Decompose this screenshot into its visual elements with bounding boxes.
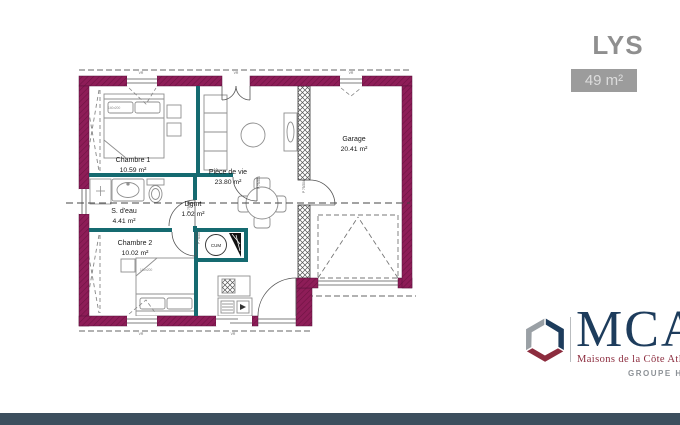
vanity-sink [112, 179, 144, 201]
room-label-chambre2: Chambre 2 10.02 m² [118, 240, 153, 257]
room-label-degagement: Dgmt 1.02 m² [181, 201, 205, 218]
sofa [204, 95, 227, 170]
window-code-5: VR [231, 332, 236, 336]
window-chambre2 [127, 316, 157, 326]
shower [90, 179, 111, 204]
mca-cube-icon [520, 314, 570, 366]
garage-name: Garage [342, 136, 365, 143]
sdeau-name: S. d'eau [111, 208, 137, 215]
entrance-door [258, 278, 296, 316]
logo-group-text: GROUPE HEXA [628, 369, 680, 378]
door-chambre2 [172, 232, 196, 256]
room-label-piece-de-vie: Pièce de vie 23.80 m² [209, 169, 247, 186]
door-code-4: P 75/204 [302, 180, 306, 193]
bay-window [216, 316, 252, 326]
garage-sectional-door [318, 215, 398, 278]
window-sdeau [79, 189, 89, 214]
entrance-threshold [258, 319, 296, 323]
logo-divider [570, 317, 571, 362]
bed-chambre2 [121, 258, 196, 316]
chambre1-area: 10.59 m² [120, 167, 148, 174]
window-garage [340, 76, 362, 86]
room-label-garage: Garage 20.41 m² [341, 136, 369, 153]
piece-de-vie-area: 23.80 m² [215, 179, 243, 186]
degagement-area: 1.02 m² [181, 211, 205, 218]
chambre2-area: 10.02 m² [122, 250, 150, 257]
window-code-4: VR [139, 332, 144, 336]
piece-de-vie-name: Pièce de vie [209, 169, 247, 176]
room-label-chambre1: Chambre 1 10.59 m² [116, 157, 151, 174]
tv-sideboard [284, 113, 297, 151]
page-canvas: 140x200 [0, 0, 680, 425]
door-code-2: P 75/204 [187, 200, 191, 213]
door-garage-access [310, 180, 335, 205]
logo-brand-text: MCA [576, 300, 680, 359]
bed-size-label-1: 140x200 [108, 106, 120, 110]
room-label-sdeau: S. d'eau 4.41 m² [111, 208, 137, 225]
logo-tagline-text: Maisons de la Côte Atlantique [577, 354, 680, 365]
round-table [241, 123, 265, 147]
sdeau-area: 4.41 m² [112, 218, 136, 225]
water-heater-label: CUM [211, 243, 221, 248]
window-code-2: VR [234, 71, 239, 75]
mca-logo: MCA Maisons de la Côte Atlantique GROUPE… [514, 300, 680, 390]
door-code-1: P 75/204 [257, 176, 261, 189]
bed-size-label-2: 140x200 [140, 268, 152, 272]
page-title: LYS [578, 30, 658, 61]
garage-door-threshold [318, 281, 398, 285]
garage-area: 20.41 m² [341, 146, 369, 153]
window-code-3: VR [349, 71, 354, 75]
chambre2-name: Chambre 2 [118, 240, 153, 247]
window-code-1: VR [139, 71, 144, 75]
footer-bar [0, 413, 680, 425]
chambre1-name: Chambre 1 [116, 157, 151, 164]
window-chambre1 [127, 76, 157, 86]
area-badge: 49 m² [571, 69, 637, 92]
toilet [147, 179, 164, 203]
water-heater: CUM [206, 235, 227, 256]
kitchen-unit [218, 276, 252, 316]
door-code-3: P 75/204 [197, 231, 201, 244]
electrical-panel [229, 233, 241, 257]
bed-chambre1 [104, 94, 181, 158]
